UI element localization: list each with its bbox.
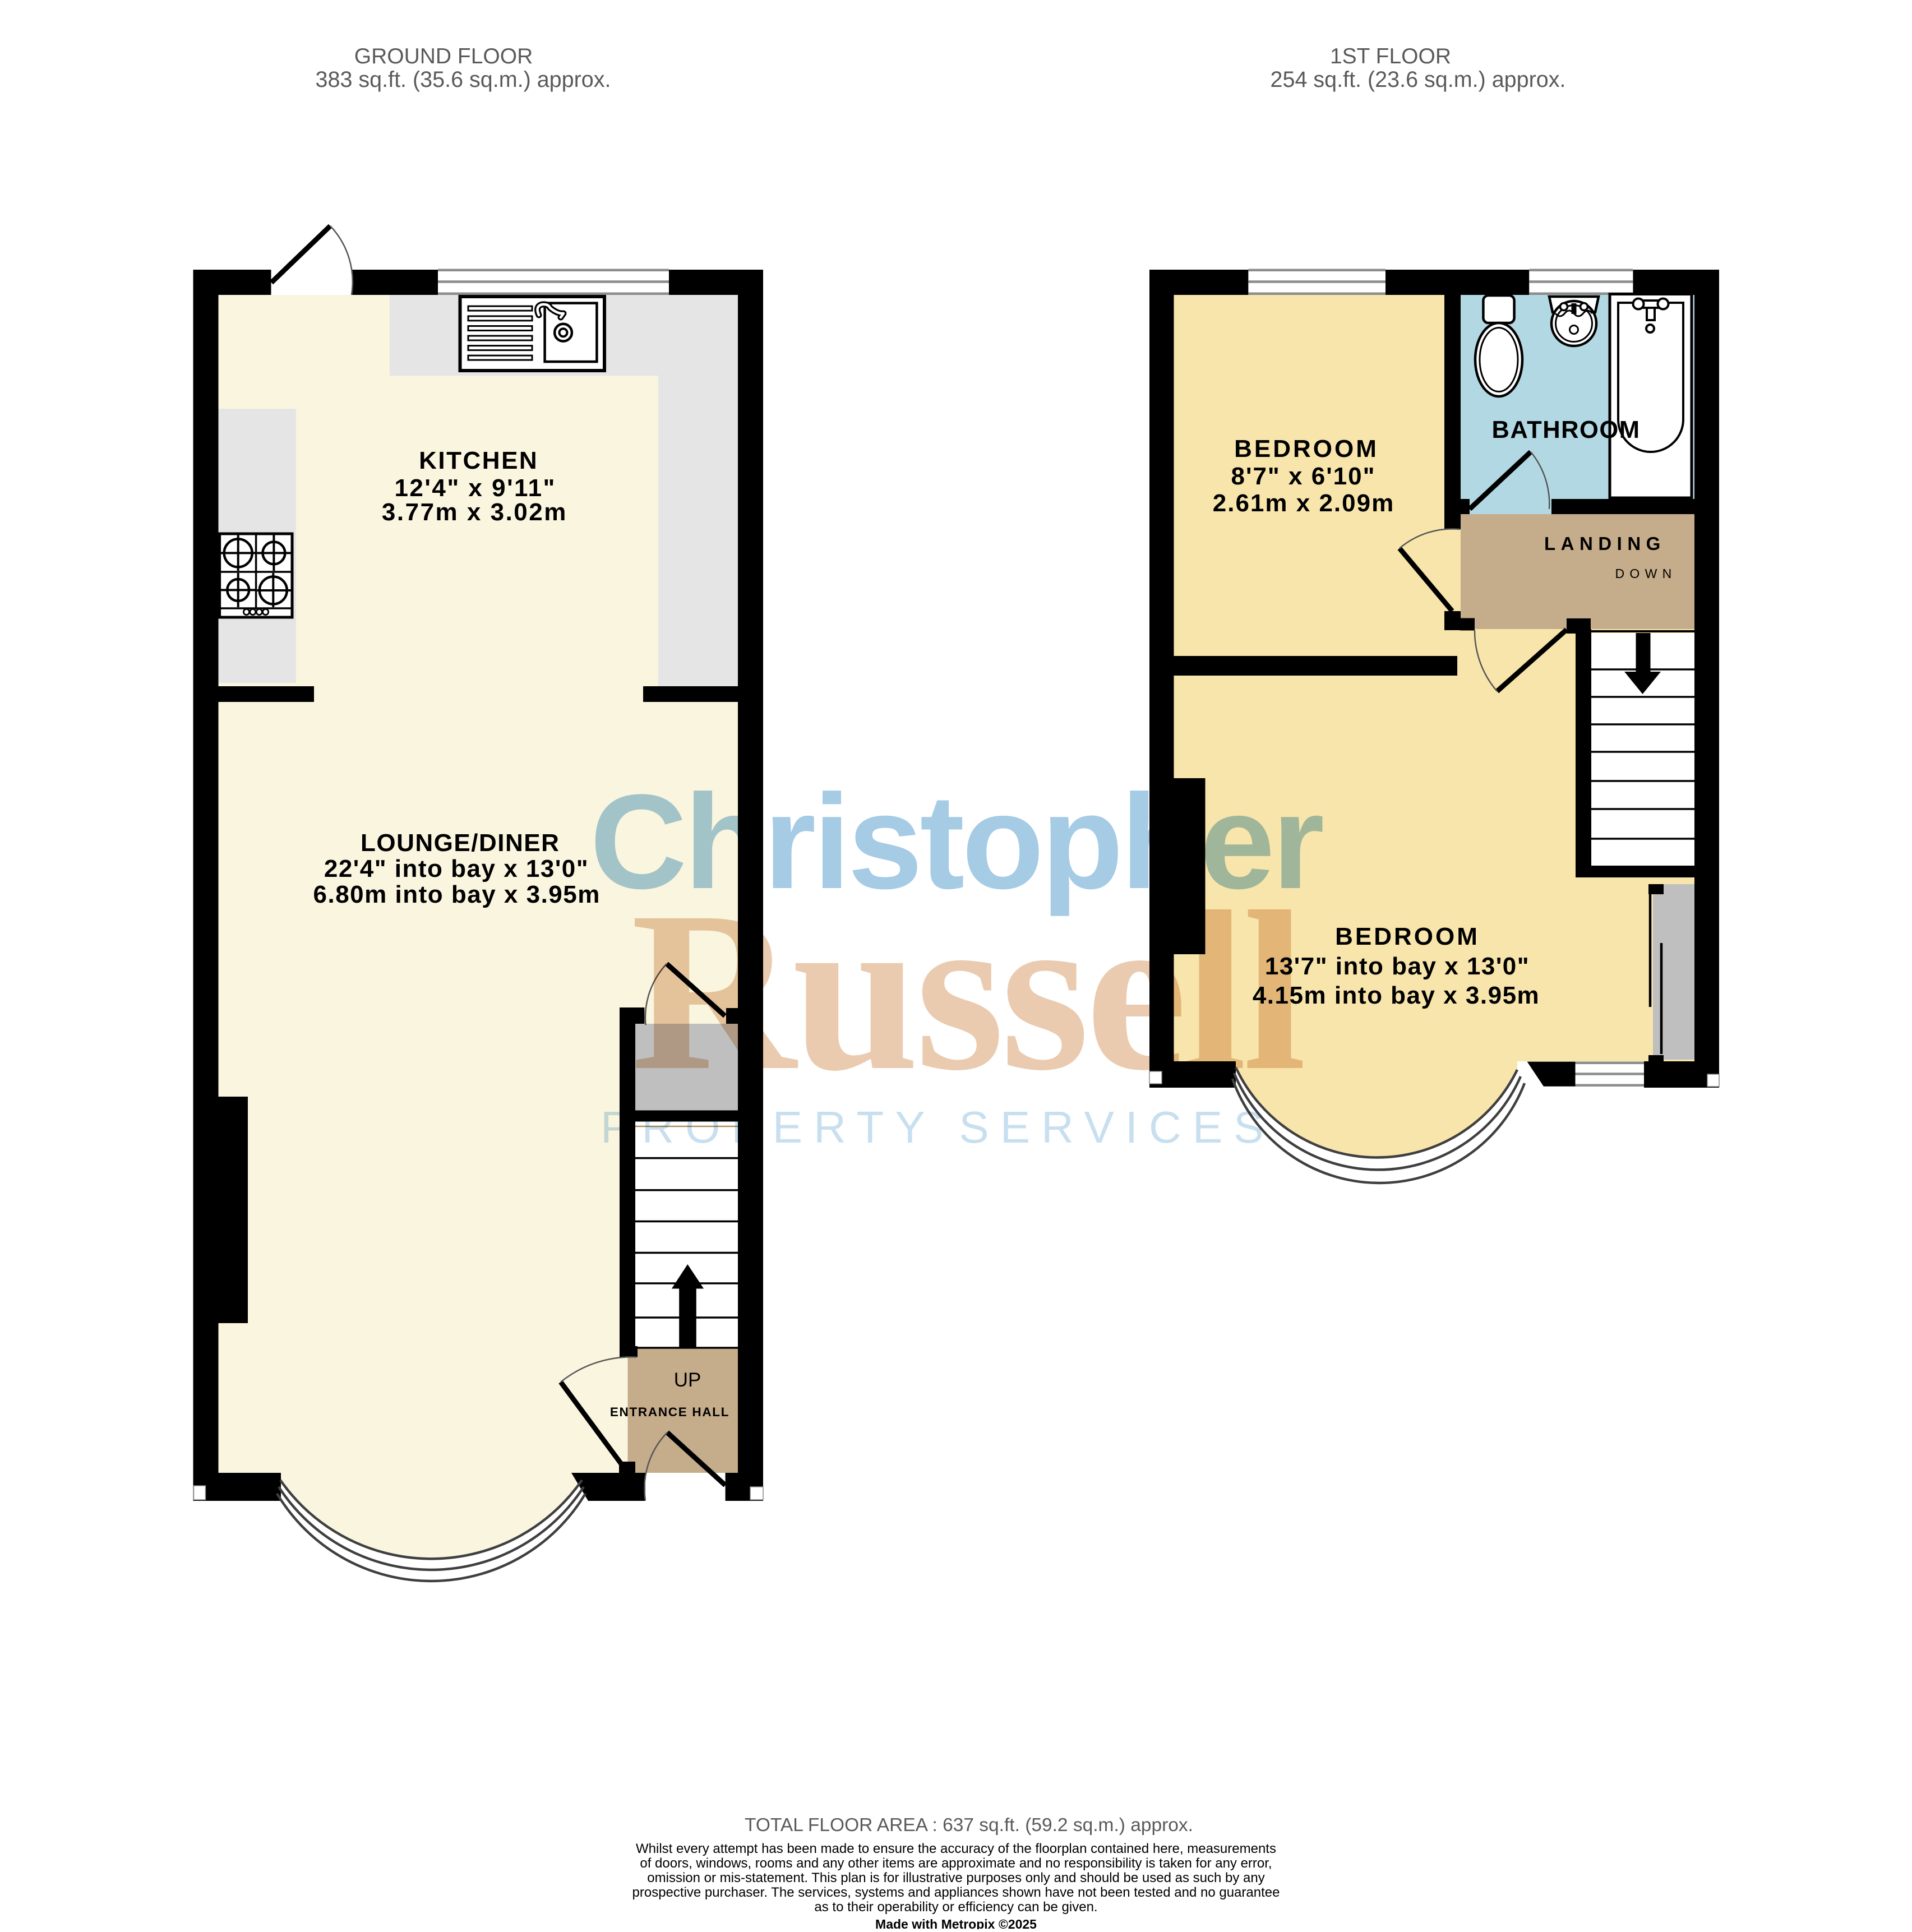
svg-text:LOUNGE/DINER: LOUNGE/DINER — [361, 829, 560, 857]
svg-text:383 sq.ft. (35.6 sq.m.) approx: 383 sq.ft. (35.6 sq.m.) approx. — [316, 67, 611, 92]
svg-text:12'4" x 9'11": 12'4" x 9'11" — [394, 474, 556, 502]
svg-text:UP: UP — [674, 1369, 701, 1391]
svg-text:ENTRANCE HALL: ENTRANCE HALL — [610, 1405, 729, 1419]
svg-text:254 sq.ft. (23.6 sq.m.) approx: 254 sq.ft. (23.6 sq.m.) approx. — [1271, 67, 1566, 92]
svg-text:13'7" into bay x 13'0": 13'7" into bay x 13'0" — [1265, 953, 1530, 980]
svg-text:LANDING: LANDING — [1544, 533, 1666, 554]
svg-text:8'7" x 6'10": 8'7" x 6'10" — [1231, 463, 1376, 490]
svg-text:6.80m into bay x 3.95m: 6.80m into bay x 3.95m — [313, 881, 601, 908]
svg-text:KITCHEN: KITCHEN — [419, 447, 538, 474]
svg-text:Whilst every attempt has been: Whilst every attempt has been made to en… — [636, 1841, 1276, 1856]
svg-text:BEDROOM: BEDROOM — [1234, 435, 1379, 463]
svg-text:of doors, windows, rooms and a: of doors, windows, rooms and any other i… — [640, 1856, 1272, 1871]
svg-text:2.61m x 2.09m: 2.61m x 2.09m — [1213, 489, 1394, 517]
svg-text:Made with Metropix ©2025: Made with Metropix ©2025 — [875, 1917, 1037, 1929]
svg-text:PROPERTY SERVICES: PROPERTY SERVICES — [601, 1102, 1275, 1152]
svg-text:GROUND FLOOR: GROUND FLOOR — [354, 44, 533, 68]
svg-text:prospective purchaser. The ser: prospective purchaser. The services, sys… — [632, 1885, 1280, 1900]
svg-text:3.77m x 3.02m: 3.77m x 3.02m — [382, 498, 567, 526]
svg-text:DOWN: DOWN — [1615, 566, 1677, 581]
svg-text:omission or mis-statement. Thi: omission or mis-statement. This plan is … — [647, 1870, 1264, 1885]
svg-text:22'4" into bay x 13'0": 22'4" into bay x 13'0" — [324, 855, 589, 882]
svg-text:BATHROOM: BATHROOM — [1492, 417, 1641, 443]
svg-text:TOTAL FLOOR AREA : 637 sq.ft.: TOTAL FLOOR AREA : 637 sq.ft. (59.2 sq.m… — [745, 1815, 1193, 1836]
svg-text:Russell: Russell — [631, 865, 1304, 1118]
svg-text:as to their operability or eff: as to their operability or efficiency ca… — [814, 1899, 1097, 1915]
svg-text:1ST FLOOR: 1ST FLOOR — [1330, 44, 1451, 68]
svg-text:BEDROOM: BEDROOM — [1335, 923, 1480, 950]
